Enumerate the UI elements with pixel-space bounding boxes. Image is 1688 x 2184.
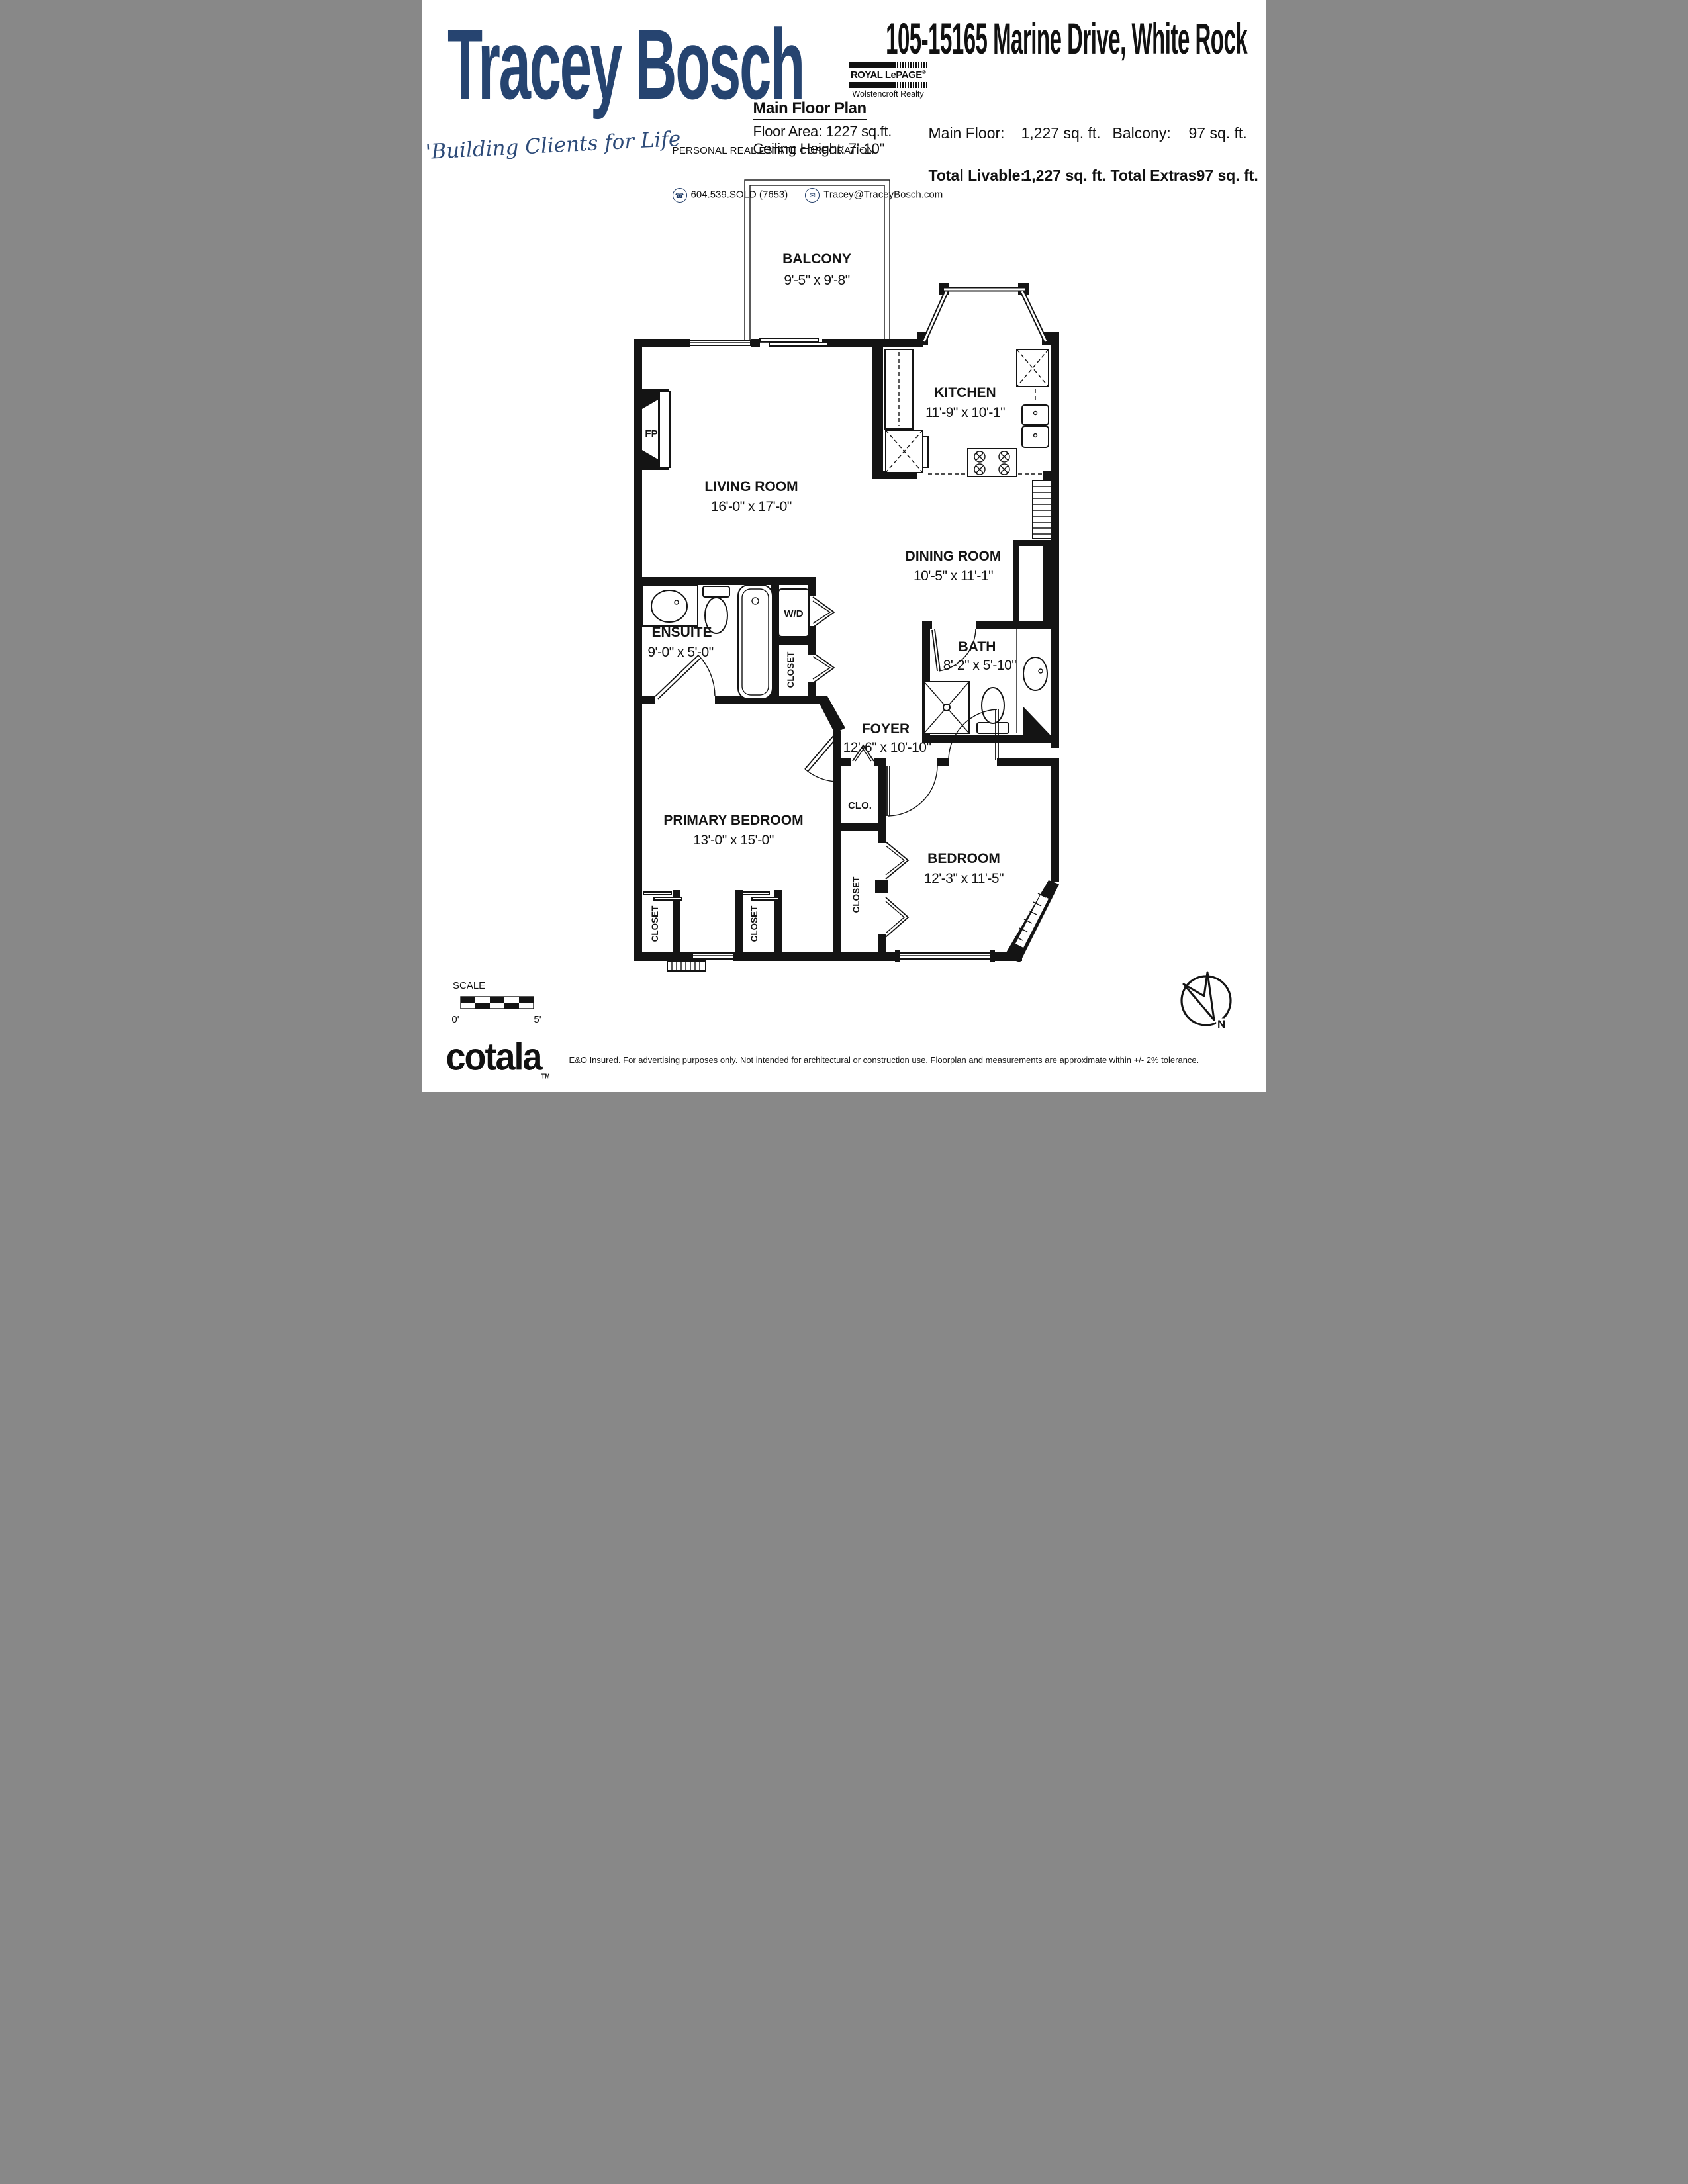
room-dims-bedroom: 12'-3" x 11'-5" [923, 871, 1003, 886]
scale-end: 5' [534, 1014, 541, 1025]
north-compass-icon: N [1182, 972, 1231, 1030]
washer-dryer-label: W/D [784, 608, 803, 619]
north-label: N [1217, 1018, 1225, 1030]
room-label-kitchen: KITCHEN [934, 385, 996, 400]
kitchen-corner-sink [1017, 349, 1049, 387]
scale-start: 0' [451, 1014, 459, 1025]
ensuite-door [655, 655, 715, 699]
room-dims-kitchen: 11'-9" x 10'-1" [925, 405, 1004, 420]
bedroom-closet-chevron-upper [886, 842, 908, 879]
room-dims-foyer: 12'-6" x 10'-10" [843, 740, 931, 755]
room-label-ensuite: ENSUITE [651, 625, 712, 640]
closet-slider-doors [643, 892, 778, 900]
room-dims-living: 16'-0" x 17'-0" [711, 499, 792, 514]
scale-bar: SCALE 0' 5' [451, 980, 541, 1025]
room-label-bedroom: BEDROOM [927, 851, 1000, 866]
room-label-foyer: FOYER [861, 721, 909, 737]
scale-label: SCALE [453, 980, 485, 991]
room-dims-balcony: 9'-5" x 9'-8" [784, 273, 849, 288]
flyer-page: Tracey Bosch 'Building Clients for Life … [422, 0, 1266, 1092]
room-label-living: LIVING ROOM [704, 479, 798, 494]
room-label-balcony: BALCONY [782, 251, 851, 267]
disclaimer-text: E&O Insured. For advertising purposes on… [569, 1055, 1199, 1065]
ensuite-sink [642, 585, 698, 626]
utility-nook [1019, 545, 1044, 622]
room-label-bath: BATH [958, 639, 996, 655]
cotala-tm: TM [541, 1073, 550, 1080]
cotala-logo: cotalaTM [446, 1038, 550, 1080]
bedroom-closet-chevron-lower [886, 897, 908, 937]
fridge [1022, 405, 1049, 447]
clo-label: CLO. [848, 800, 872, 811]
room-label-primary: PRIMARY BEDROOM [663, 813, 803, 828]
room-dims-ensuite: 9'-0" x 5'-0" [647, 645, 713, 660]
railing-hatch [1033, 480, 1051, 539]
living-window [690, 340, 751, 345]
stove [968, 449, 1017, 477]
bedroom-corner-window [1015, 893, 1049, 948]
balcony-slider-door [760, 338, 827, 346]
closet-label-bedroom: CLOSET [851, 876, 861, 913]
bathtub [738, 585, 773, 699]
washer-dryer: W/D [778, 589, 809, 637]
closet-label-primary-a: CLOSET [650, 905, 660, 942]
bath-toilet [977, 688, 1009, 733]
room-dims-bath: 8'-2" x 5'-10" [943, 658, 1016, 673]
closet-label-primary-b: CLOSET [749, 905, 759, 942]
room-dims-primary: 13'-0" x 15'-0" [693, 833, 774, 848]
fireplace-label: FP [645, 428, 657, 439]
bay-window [924, 289, 1046, 341]
floor-plan: FP [422, 0, 1266, 1092]
room-label-dining: DINING ROOM [905, 549, 1001, 564]
closet-door-chevron [813, 653, 834, 683]
room-dims-dining: 10'-5" x 11'-1" [913, 569, 992, 584]
exterior-steps [667, 961, 706, 971]
bedroom-door [887, 766, 937, 816]
dishwasher [886, 430, 928, 473]
closet-label-wd-column: CLOSET [786, 651, 796, 688]
wd-door-chevron [813, 597, 834, 627]
